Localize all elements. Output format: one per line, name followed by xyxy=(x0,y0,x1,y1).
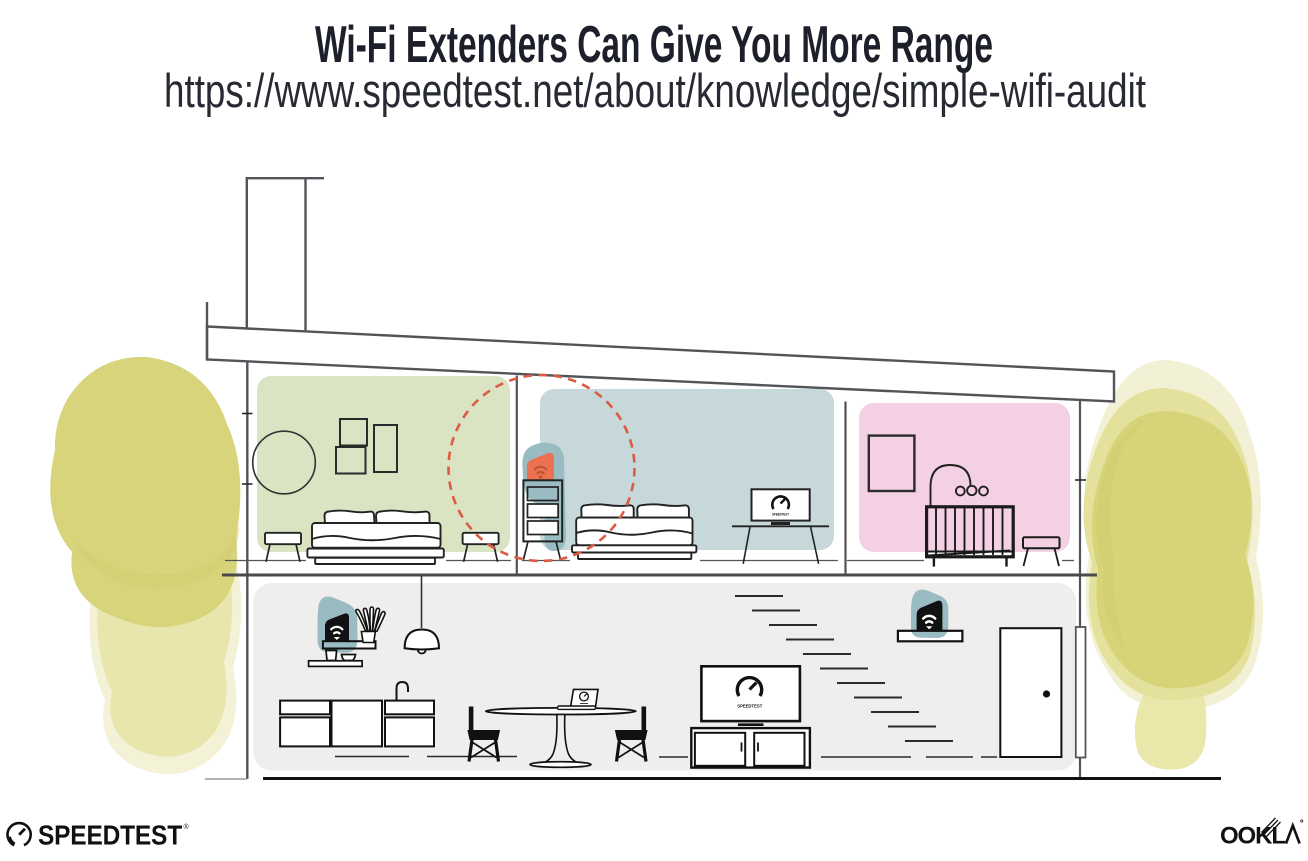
svg-text:SPEEDTEST: SPEEDTEST xyxy=(38,820,182,851)
svg-text:®: ® xyxy=(184,823,190,831)
svg-text:SPEEDTEST: SPEEDTEST xyxy=(772,513,790,517)
svg-text:SPEEDTEST: SPEEDTEST xyxy=(737,704,762,709)
svg-text:https://www.speedtest.net/abou: https://www.speedtest.net/about/knowledg… xyxy=(164,64,1146,117)
